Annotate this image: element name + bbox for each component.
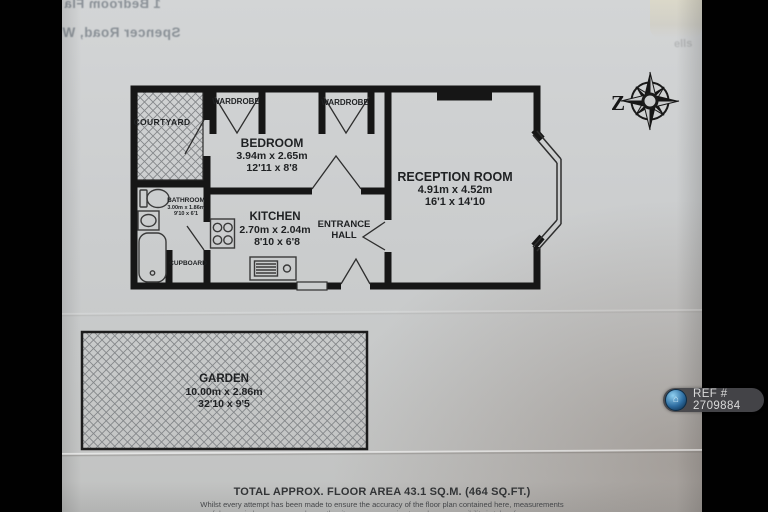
photo-black-edge-left [0, 0, 62, 512]
label-courtyard: COURTYARD [133, 118, 190, 127]
ref-badge-label: REF # 2709884 [693, 388, 764, 412]
bleed-text-line1: 1 Bedroom Fla [64, 0, 161, 11]
label-entrance-hall-2: HALL [331, 231, 356, 241]
photo-black-edge-right [702, 0, 768, 512]
label-garden: GARDEN [199, 374, 249, 386]
corner-watermark-text: ells [674, 38, 693, 51]
badge-photo-icon: ⌂ [665, 389, 687, 411]
total-floor-area-text: TOTAL APPROX. FLOOR AREA 43.1 SQ.M. (464… [234, 486, 531, 498]
ref-badge: ⌂ REF # 2709884 [663, 388, 764, 412]
label-bathroom: BATHROOM [167, 198, 205, 205]
dim-bedroom-imperial: 12'11 x 8'8 [246, 163, 297, 174]
photo-paper: 1 Bedroom Fla Spencer Road, W ells [62, 0, 702, 512]
label-cupboard: CUPBOARD [169, 261, 207, 268]
paper-crease-lower [62, 449, 702, 457]
dim-kitchen-imperial: 8'10 x 6'8 [254, 237, 300, 248]
label-wardrobe-right: WARDROBE [321, 99, 369, 107]
label-reception: RECEPTION ROOM [397, 171, 512, 184]
dim-kitchen-metric: 2.70m x 2.04m [239, 225, 310, 236]
paper-crease-upper [62, 309, 702, 317]
bleed-text-line2: Spencer Road, W [62, 25, 181, 40]
disclaimer-line1: Whilst every attempt has been made to en… [200, 500, 563, 509]
label-wardrobe-left: WARDROBE [212, 98, 260, 106]
dim-garden-metric: 10.00m x 2.86m [185, 387, 262, 398]
dim-reception-imperial: 16'1 x 14'10 [425, 197, 485, 208]
label-entrance-hall-1: ENTRANCE [318, 220, 371, 230]
dim-bathroom-imperial: 9'10 x 6'1 [174, 212, 198, 218]
paper-reflection [650, 0, 702, 38]
dim-reception-metric: 4.91m x 4.52m [418, 185, 493, 196]
dim-bedroom-metric: 3.94m x 2.65m [236, 151, 307, 162]
dim-garden-imperial: 32'10 x 9'5 [198, 399, 250, 410]
label-kitchen: KITCHEN [249, 212, 300, 224]
paper-shading [62, 0, 702, 512]
label-bedroom: BEDROOM [241, 137, 304, 149]
floorplan-photo: 1 Bedroom Fla Spencer Road, W ells [0, 0, 768, 512]
